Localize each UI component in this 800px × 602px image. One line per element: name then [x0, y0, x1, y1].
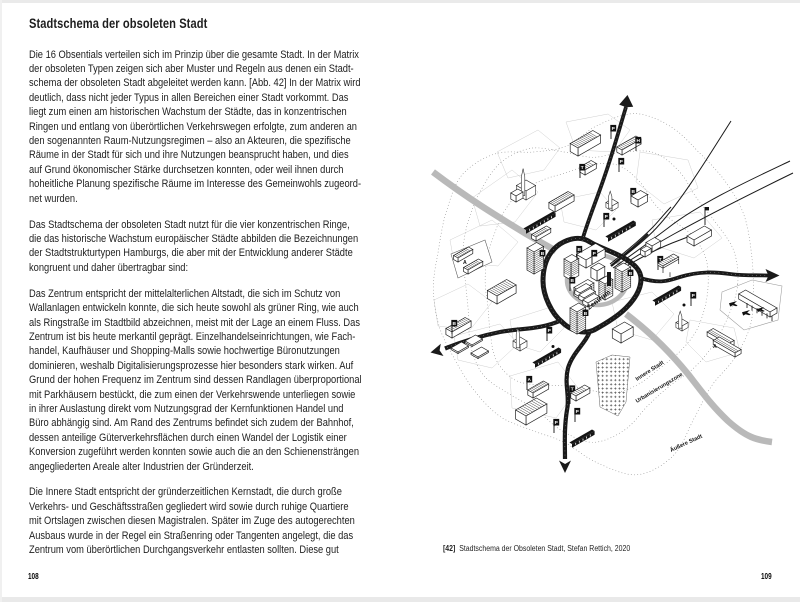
svg-text:B: B [452, 321, 456, 327]
svg-text:A: A [463, 260, 467, 266]
svg-text:B: B [570, 278, 574, 284]
svg-text:A: A [713, 344, 717, 350]
svg-text:B: B [629, 271, 633, 277]
svg-text:Äußere Stadt: Äußere Stadt [669, 433, 704, 454]
svg-text:H: H [636, 138, 640, 144]
svg-text:T: T [581, 165, 584, 171]
svg-text:B: B [577, 247, 581, 253]
svg-text:B: B [584, 311, 588, 317]
svg-text:B: B [541, 251, 545, 257]
svg-text:Innere Stadt: Innere Stadt [635, 360, 665, 383]
